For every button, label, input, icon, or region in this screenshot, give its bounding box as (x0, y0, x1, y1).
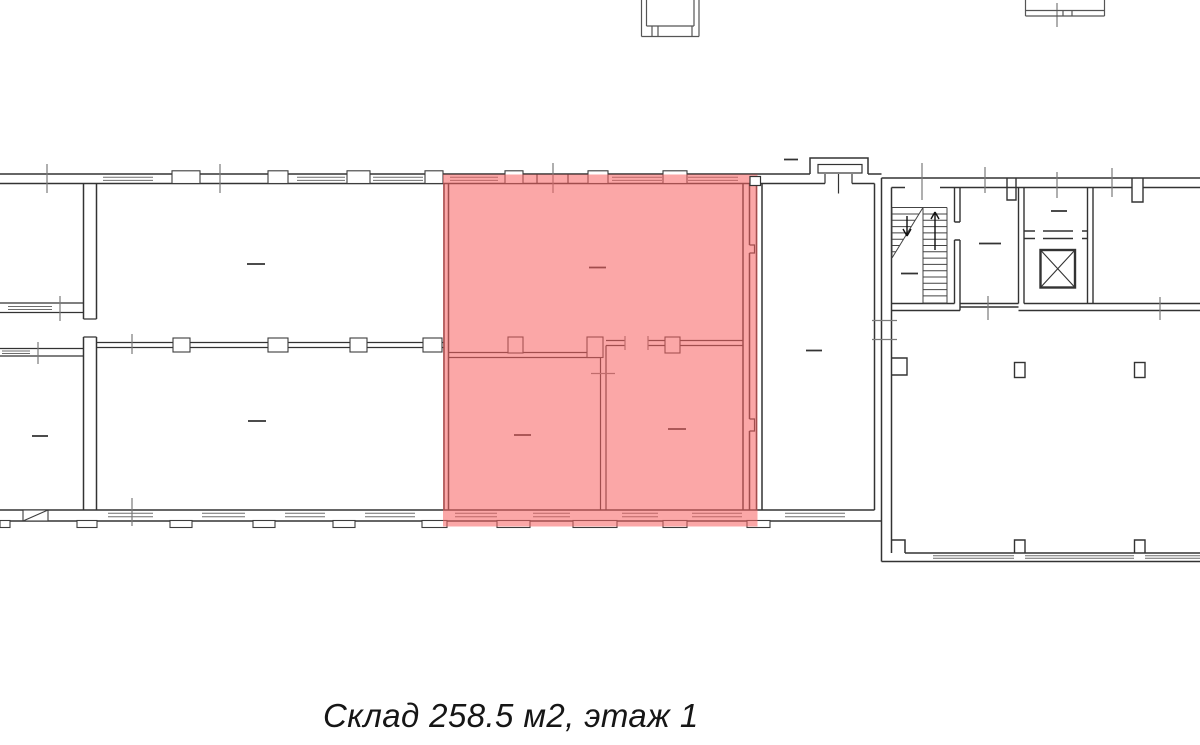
elevator-shaft (1041, 250, 1076, 288)
right-block-walls (892, 178, 1200, 553)
roof-structure-right (1026, 0, 1105, 16)
highlighted-warehouse-area (443, 175, 758, 527)
roof-structure-left (642, 0, 700, 37)
duct-square (750, 177, 761, 186)
staircase (892, 208, 947, 304)
hall-column (1015, 363, 1026, 378)
floor-plan (0, 0, 1200, 745)
hall-column (1135, 363, 1146, 378)
plan-caption: Склад 258.5 м2, этаж 1 (323, 697, 699, 735)
stairs-up-arrow-icon (931, 212, 939, 250)
elevator-x-icon (1041, 250, 1076, 288)
entrance-vestibule-step (818, 165, 862, 174)
entrance-ramp (23, 510, 48, 521)
